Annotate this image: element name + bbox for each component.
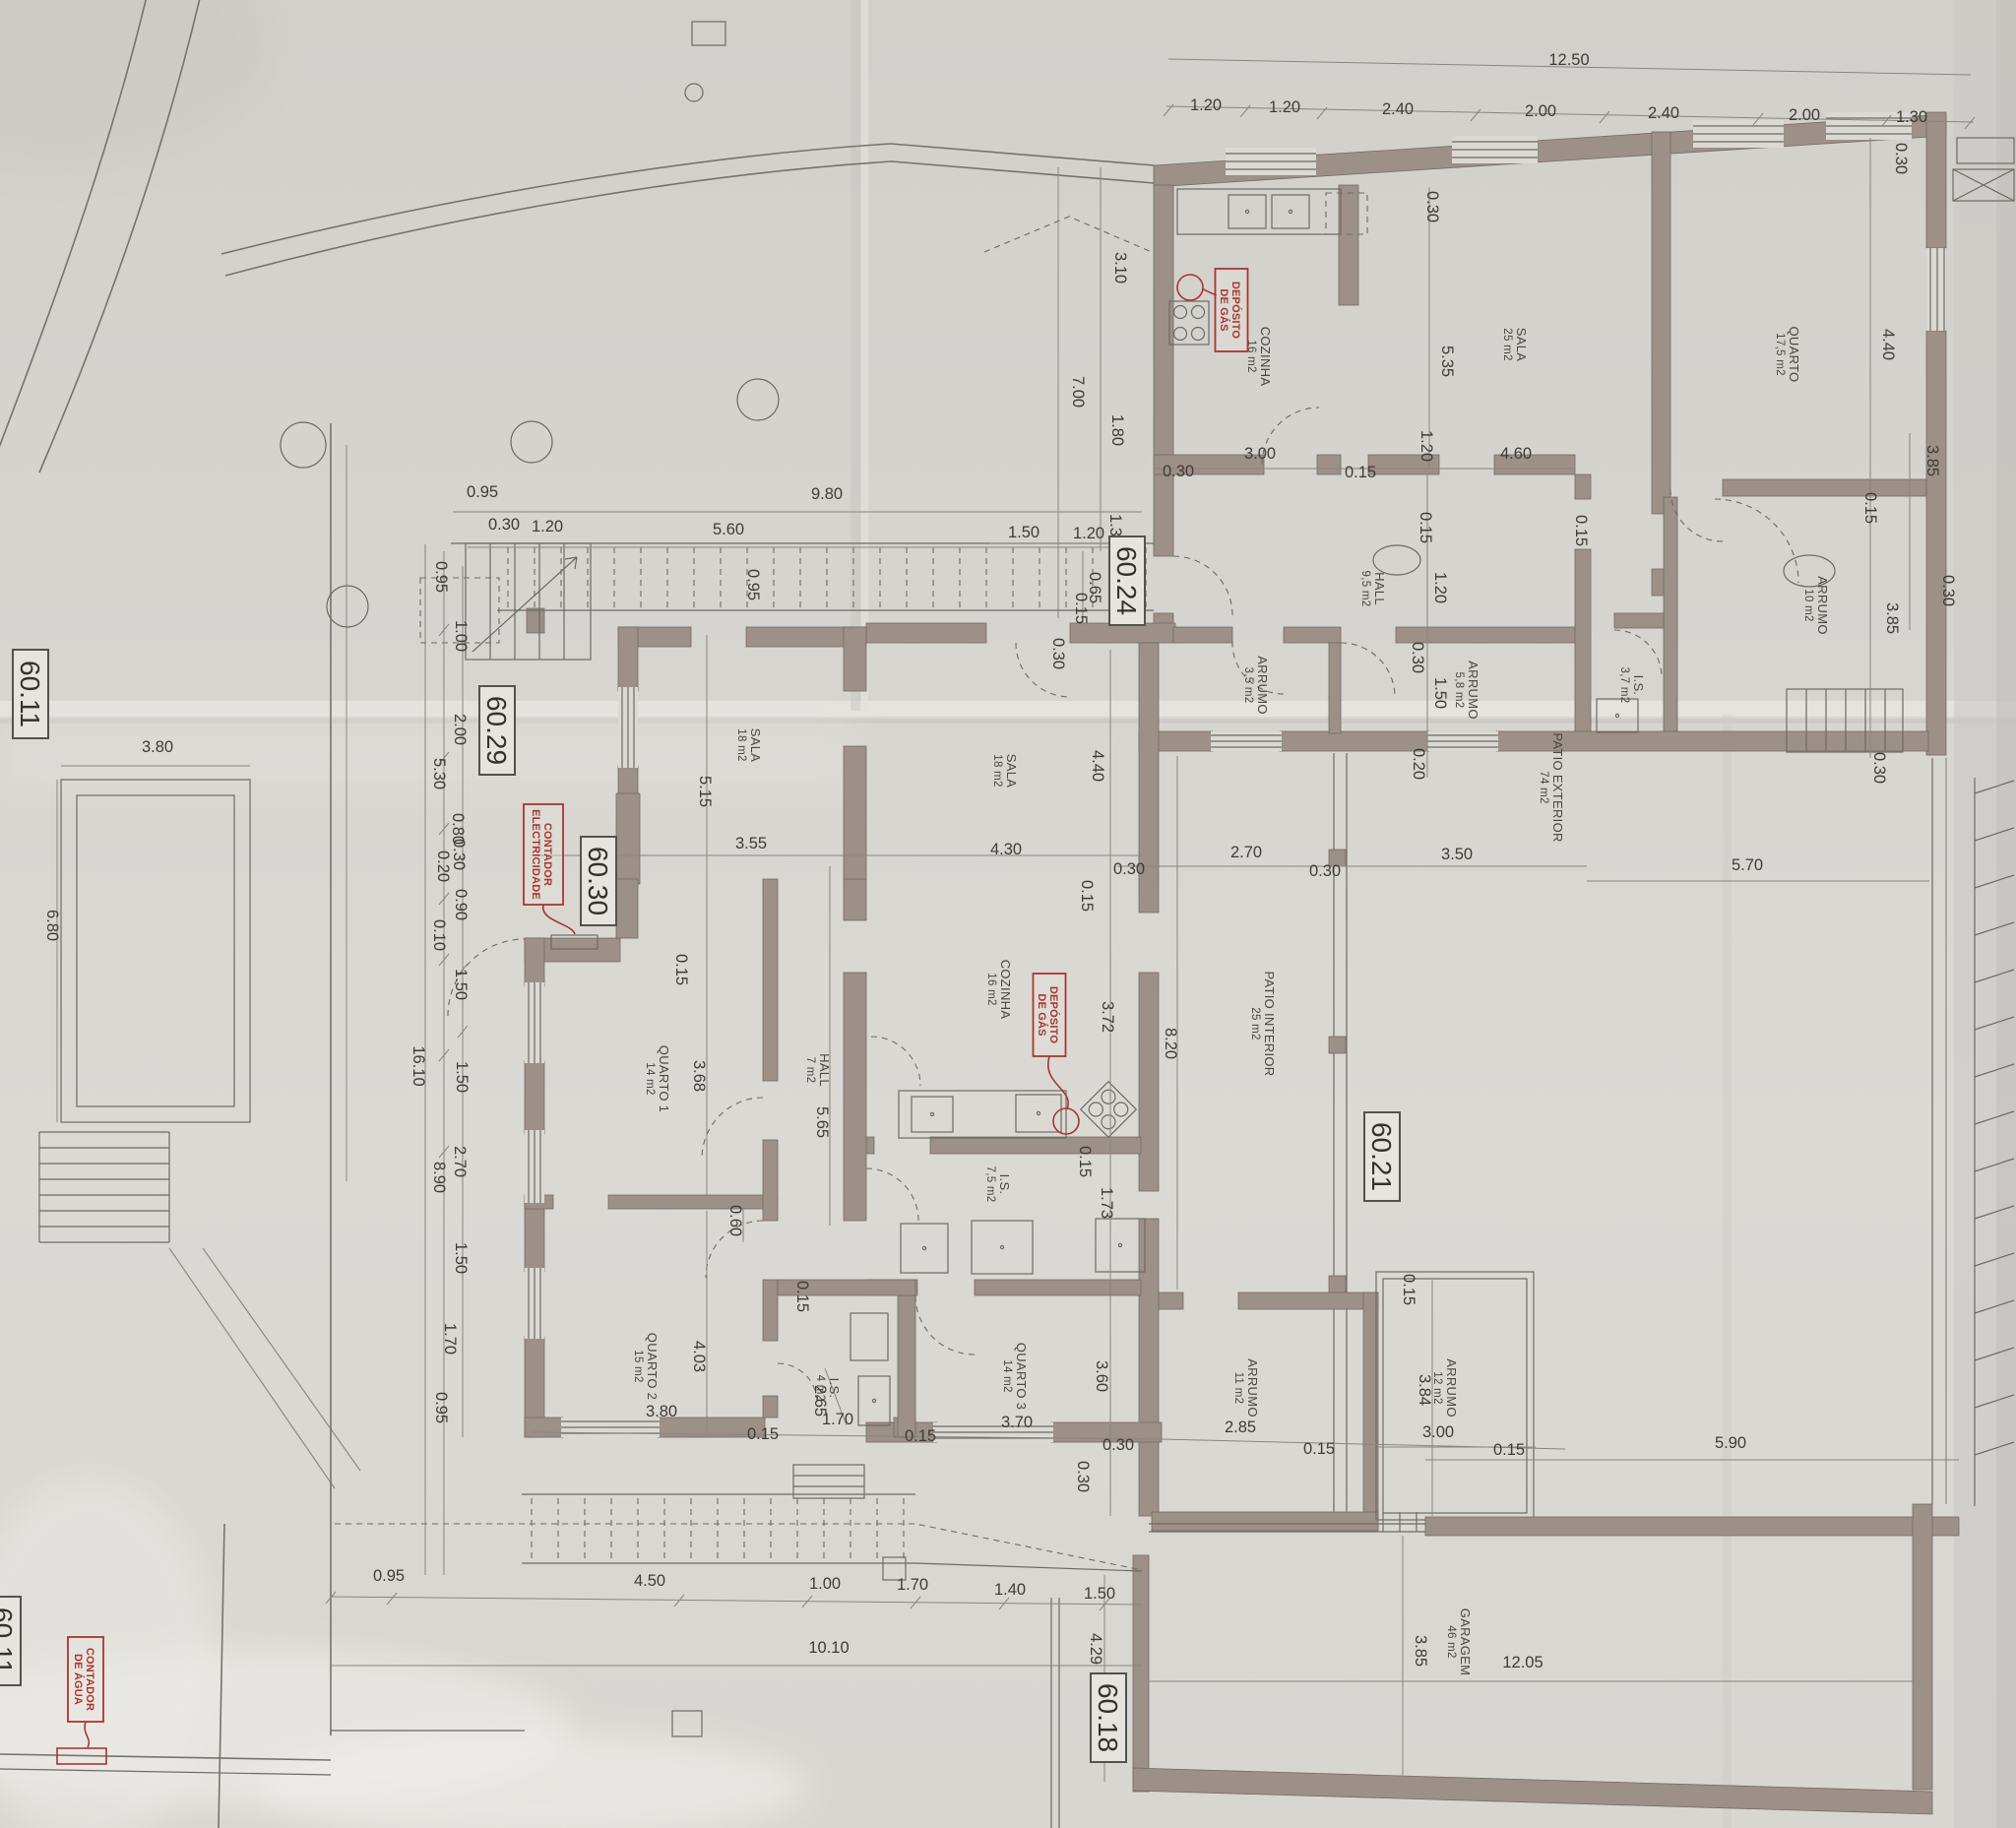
dimension-label: 0.15 [793,1281,811,1312]
dimension-label: 1.20 [1073,525,1104,542]
dimension-label: 2.70 [1230,844,1262,861]
floorplan-photo: COZINHA16 m2SALA25 m2QUARTO17,5 m2HALL9,… [0,0,2016,1828]
dimension-label: 7.00 [1069,376,1087,408]
svg-text:DEPÓSITODE GÁS: DEPÓSITODE GÁS [1218,282,1242,339]
reference-marker: 60.18 [1091,1673,1126,1762]
dimension-label: 0.30 [1892,143,1910,174]
dimension-label: 1.80 [1108,414,1126,446]
dimension-label: 1.70 [822,1411,853,1428]
dimension-label: 0.30 [1423,191,1441,222]
dimension-label: 1.50 [1008,524,1039,541]
dimension-label: 5.35 [1438,346,1456,377]
dimension-label: 9.80 [811,485,843,503]
dimension-label: 1.20 [1269,98,1300,116]
dimension-label: 1.20 [1431,572,1449,603]
red-annotation: DEPÓSITODE GÁS [1034,974,1066,1056]
dimension-label: 0.95 [744,569,762,600]
dimension-label: 4.03 [690,1341,708,1372]
dimension-label: 0.95 [432,561,450,593]
svg-text:60.30: 60.30 [583,847,613,915]
red-annotation: CONTADORELECTRICIDADE [524,804,563,905]
svg-text:60.24: 60.24 [1111,546,1142,615]
dimension-label: 8.20 [1162,1028,1179,1059]
dimension-label: 1.20 [532,518,563,536]
dimension-label: 1.20 [1417,430,1435,462]
dimension-label: 12.50 [1548,51,1589,69]
dimension-label: 3.55 [735,835,767,852]
dimension-label: 0.30 [1074,1461,1092,1492]
dimension-label: 5.90 [1715,1434,1746,1452]
dimension-label: 0.30 [1113,860,1145,878]
svg-text:60.29: 60.29 [481,696,512,765]
dimension-label: 0.15 [1861,492,1879,524]
dimension-label: 0.15 [1345,464,1376,481]
dimension-label: 0.95 [373,1567,405,1585]
dimension-label: 0.90 [452,889,470,920]
dimension-label: 4.40 [1089,750,1106,782]
red-annotation: DEPÓSITODE GÁS [1216,269,1248,351]
floorplan-svg: COZINHA16 m2SALA25 m2QUARTO17,5 m2HALL9,… [0,0,2016,1828]
svg-text:60.11: 60.11 [0,1607,18,1674]
dimension-label: 0.15 [1493,1441,1525,1459]
dimension-label: 2.70 [451,1146,469,1177]
dimension-label: 5.70 [1732,856,1763,874]
dimension-label: 12.05 [1502,1654,1543,1671]
dimension-label: 0.15 [747,1425,779,1443]
dimension-label: 0.30 [1163,463,1194,480]
dimension-label: 0.30 [1870,752,1888,784]
dimension-label: 5.30 [430,758,448,789]
dimension-label: 0.15 [1076,1146,1094,1177]
dimension-label: 4.60 [1500,445,1532,463]
dimension-label: 0.15 [1303,1440,1335,1458]
dimension-label: 3.00 [1422,1423,1454,1441]
dimension-label: 2.00 [451,714,469,745]
dimension-label: 1.50 [452,1242,470,1274]
dimension-label: 4.40 [1879,329,1897,360]
dimension-label: 0.30 [1939,575,1957,606]
red-annotation: CONTADORDE ÁGUA [68,1637,103,1722]
dimension-label: 5.60 [713,521,744,538]
dimension-label: 1.30 [1896,108,1927,126]
reference-marker: 60.21 [1364,1112,1400,1201]
dimension-label: 1.00 [452,620,470,652]
dimension-label: 3.80 [142,738,173,756]
dimension-label: 8.90 [430,1162,448,1193]
dimension-label: 3.85 [1923,445,1941,476]
dimension-label: 3.60 [1093,1360,1110,1392]
dimension-label: 10.10 [808,1639,849,1657]
dimension-label: 0.15 [1400,1274,1417,1305]
dimension-label: 0.30 [1409,642,1426,673]
svg-text:60.18: 60.18 [1093,1683,1123,1752]
dimension-label: 3.84 [1416,1374,1433,1406]
dimension-label: 2.40 [1648,104,1679,122]
dimension-label: 0.95 [432,1392,450,1423]
reference-marker: 60.30 [581,837,616,925]
dimension-label: 1.00 [809,1575,841,1593]
dimension-label: 3.70 [1001,1414,1033,1431]
dimension-label: 0.15 [1078,880,1096,912]
dimension-label: 2.40 [1382,100,1414,118]
room-label: HALL7 m2 [804,1053,832,1087]
dimension-label: 0.15 [672,954,690,985]
svg-text:DEPÓSITODE GÁS: DEPÓSITODE GÁS [1036,986,1060,1043]
dimension-label: 3.68 [690,1060,708,1092]
reference-marker: 60.11 [13,650,48,738]
dimension-label: 0.15 [1072,593,1090,624]
room-label: SALA18 m2 [735,728,763,762]
reference-marker: 60.11 [0,1597,21,1685]
dimension-label: 5.65 [813,1106,831,1138]
room-label: SALA18 m2 [991,754,1019,788]
dimension-label: 3.00 [1244,445,1276,463]
dimension-label: 1.70 [897,1576,928,1594]
dimension-label: 0.15 [1572,515,1590,546]
dimension-label: 0.30 [488,516,520,534]
reference-marker: 60.29 [479,686,515,775]
dimension-label: 2.00 [1789,106,1820,124]
dimension-label: 3.72 [1099,1001,1116,1033]
room-label: SALA25 m2 [1501,328,1529,361]
dimension-label: 16.10 [409,1045,427,1086]
dimension-label: 2.00 [1525,102,1556,120]
svg-text:60.21: 60.21 [1366,1122,1397,1191]
reference-marker: 60.24 [1109,536,1145,625]
dimension-label: 1.50 [453,1061,471,1093]
dimension-label: 0.95 [467,483,498,501]
dimension-label: 1.73 [1098,1187,1115,1219]
svg-text:60.11: 60.11 [15,661,45,727]
room-label: HALL9,5 m2 [1359,571,1387,607]
svg-text:CONTADORDE ÁGUA: CONTADORDE ÁGUA [72,1648,95,1711]
dimension-label: 0.15 [905,1427,936,1445]
dimension-label: 0.20 [434,851,452,882]
dimension-label: 0.15 [1417,512,1434,543]
dimension-label: 1.70 [441,1323,459,1355]
dimension-label: 2.85 [1225,1418,1256,1436]
dimension-label: 3.10 [1111,252,1129,284]
dimension-label: 4.30 [990,841,1022,858]
dimension-label: 0.20 [1410,748,1427,780]
dimension-label: 1.50 [1431,677,1449,709]
svg-text:CONTADORELECTRICIDADE: CONTADORELECTRICIDADE [530,809,553,900]
dimension-label: 4.50 [634,1572,665,1590]
dimension-label: 0.60 [726,1205,744,1236]
dimension-label: 0.30 [1049,638,1067,669]
dimension-label: 3.80 [646,1403,677,1420]
dimension-label: 4.29 [1087,1633,1104,1665]
dimension-label: 3.50 [1441,846,1473,863]
dimension-label: 1.40 [994,1581,1026,1599]
dimension-label: 3.85 [1883,602,1901,634]
dimension-label: 6.80 [43,910,61,941]
dimension-label: 0.10 [430,919,448,951]
dimension-label: 1.20 [1190,96,1222,114]
paper-background [0,0,2016,1828]
dimension-label: 5.15 [696,776,714,807]
dimension-label: 0.30 [1102,1436,1134,1454]
dimension-label: 1.50 [1084,1585,1115,1603]
dimension-label: 0.30 [1309,862,1341,880]
dimension-label: 3.85 [1412,1635,1429,1667]
dimension-label: 1.50 [452,969,470,1000]
room-label: QUARTO17,5 m2 [1774,327,1801,383]
